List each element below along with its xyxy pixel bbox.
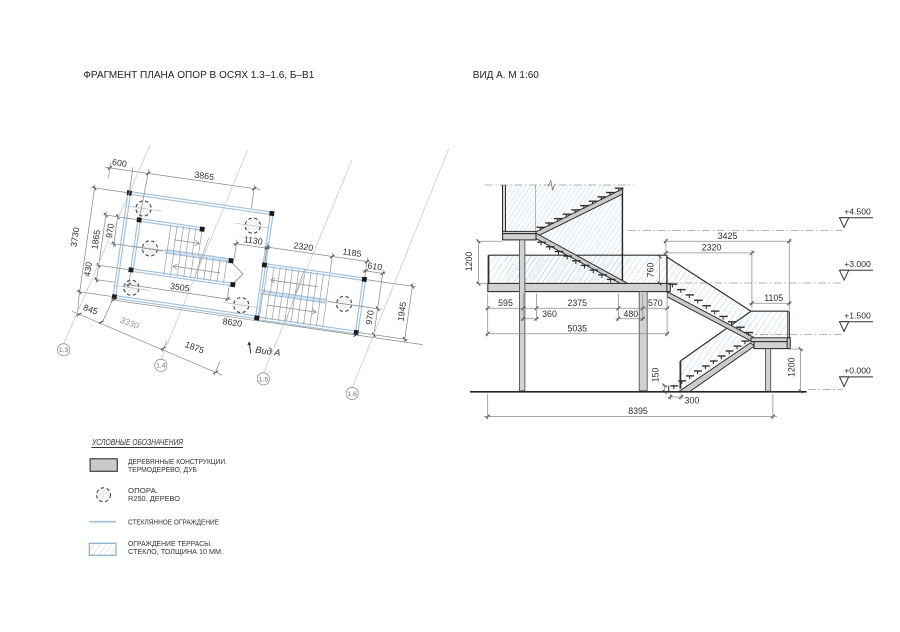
- svg-text:2375: 2375: [568, 298, 588, 308]
- svg-text:СТЕКЛЯННОЕ ОГРАЖДЕНИЕ: СТЕКЛЯННОЕ ОГРАЖДЕНИЕ: [128, 517, 219, 526]
- svg-text:1875: 1875: [184, 339, 206, 355]
- svg-text:+1.500: +1.500: [844, 311, 871, 321]
- svg-text:1200: 1200: [787, 357, 797, 377]
- svg-text:ФРАГМЕНТ ПЛАНА ОПОР В ОСЯХ 1.3: ФРАГМЕНТ ПЛАНА ОПОР В ОСЯХ 1.3–1.6, Б–В1: [83, 70, 314, 81]
- svg-text:3505: 3505: [169, 281, 190, 294]
- svg-text:1.3: 1.3: [59, 347, 69, 354]
- svg-text:3425: 3425: [718, 231, 738, 241]
- svg-text:1945: 1945: [396, 301, 409, 322]
- svg-text:600: 600: [111, 157, 127, 169]
- svg-text:2320: 2320: [702, 243, 722, 253]
- svg-text:ВИД А. М 1:60: ВИД А. М 1:60: [473, 70, 539, 81]
- svg-text:3330: 3330: [119, 315, 141, 331]
- svg-text:150: 150: [650, 368, 660, 383]
- svg-text:760: 760: [645, 263, 655, 278]
- svg-text:Вид А: Вид А: [255, 345, 281, 358]
- svg-text:СТЕКЛО, ТОЛЩИНА 10 ММ.: СТЕКЛО, ТОЛЩИНА 10 ММ.: [128, 547, 223, 556]
- svg-text:970: 970: [104, 223, 116, 239]
- svg-text:1.4: 1.4: [156, 363, 166, 370]
- svg-text:1865: 1865: [89, 229, 102, 250]
- svg-text:570: 570: [648, 298, 663, 308]
- svg-text:ТЕРМОДЕРЕВО, ДУБ: ТЕРМОДЕРЕВО, ДУБ: [128, 465, 197, 474]
- svg-text:610: 610: [367, 260, 383, 272]
- svg-text:480: 480: [623, 309, 638, 319]
- svg-text:+3.000: +3.000: [844, 259, 871, 269]
- svg-text:+4.500: +4.500: [844, 207, 871, 217]
- svg-text:3730: 3730: [69, 227, 82, 248]
- svg-text:+0.000: +0.000: [844, 366, 871, 376]
- svg-text:1185: 1185: [342, 246, 362, 259]
- svg-text:1.6: 1.6: [347, 391, 357, 398]
- svg-text:1105: 1105: [764, 293, 783, 303]
- svg-text:8395: 8395: [628, 406, 648, 416]
- svg-text:360: 360: [542, 309, 557, 319]
- svg-text:8620: 8620: [222, 316, 243, 329]
- svg-text:1.5: 1.5: [259, 376, 269, 383]
- svg-text:R250. ДЕРЕВО: R250. ДЕРЕВО: [128, 494, 180, 503]
- svg-text:970: 970: [364, 309, 376, 325]
- svg-text:5035: 5035: [568, 324, 588, 334]
- svg-text:УСЛОВНЫЕ ОБОЗНАЧЕНИЯ: УСЛОВНЫЕ ОБОЗНАЧЕНИЯ: [91, 437, 183, 447]
- svg-text:845: 845: [82, 302, 99, 316]
- svg-text:300: 300: [685, 396, 700, 406]
- svg-text:595: 595: [498, 298, 513, 308]
- svg-text:1200: 1200: [464, 252, 474, 272]
